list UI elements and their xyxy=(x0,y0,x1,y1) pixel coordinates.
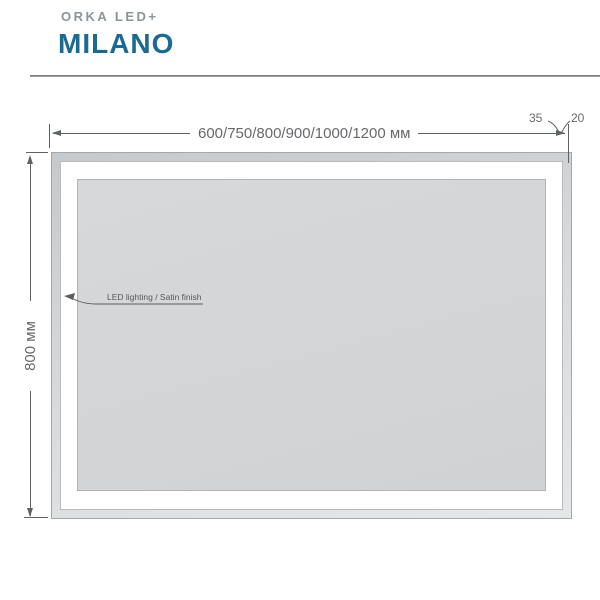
height-extension-line-bottom xyxy=(24,517,48,518)
height-dimension-label: 800 мм xyxy=(22,301,40,391)
dimension-arrow-right-icon xyxy=(556,130,565,136)
detail-dimension-35-label: 35 xyxy=(529,112,542,125)
feature-callout-label: LED lighting / Satin finish xyxy=(107,292,202,302)
header-divider xyxy=(30,75,600,77)
width-dimension-label: 600/750/800/900/1000/1200 мм xyxy=(190,125,418,142)
dimension-arrow-down-icon xyxy=(27,508,33,517)
model-name: MILANO xyxy=(58,28,174,60)
detail-dimension-20-label: 20 xyxy=(571,112,584,125)
mirror-frame xyxy=(51,152,572,519)
width-extension-line-right xyxy=(568,124,569,163)
dimension-arrow-up-icon xyxy=(27,155,33,164)
mirror-surface xyxy=(77,179,546,491)
height-extension-line-top xyxy=(26,152,48,153)
brand-name: ORKA LED+ xyxy=(61,9,159,24)
dimension-arrow-left-icon xyxy=(52,130,61,136)
width-extension-line-left xyxy=(49,124,50,148)
